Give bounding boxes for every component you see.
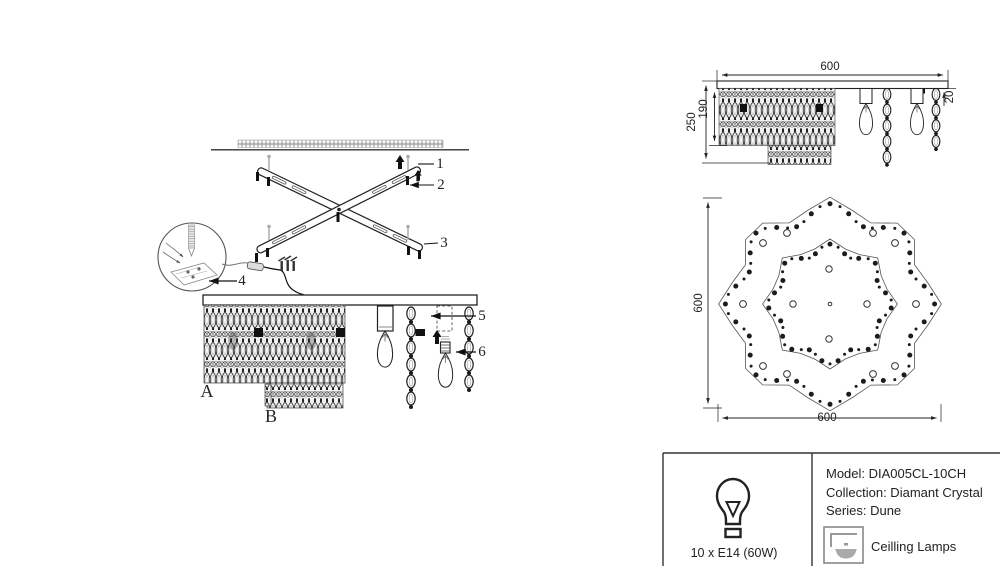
screw-icon: [267, 225, 271, 240]
series-text: Series: Dune: [826, 503, 901, 518]
side-view: [702, 70, 956, 167]
callout-2: 2: [433, 177, 449, 194]
ceiling-lamp-icon: [824, 527, 863, 563]
crystal-curtain-a: [204, 305, 345, 383]
callout-1: 1: [432, 156, 448, 173]
collection-text: Collection: Diamant Crystal: [826, 485, 983, 500]
line-art-layer: [0, 0, 1000, 566]
screw-icon: [406, 155, 410, 170]
arrow-up-icon: [396, 155, 405, 169]
plan-height-dim: 600: [693, 288, 705, 318]
curtain-b-side: [768, 146, 831, 165]
mounting-screws: [279, 256, 298, 271]
crystal-chain-side: [932, 89, 940, 152]
cross-mounting-bracket: [255, 155, 424, 262]
plate-side: [717, 81, 948, 89]
plan-width-dim: 600: [807, 412, 847, 424]
lamp-positions: [740, 230, 920, 378]
side-total-height-dim: 250: [686, 107, 698, 137]
category-text: Ceilling Lamps: [871, 539, 956, 554]
side-width-dim: 600: [810, 61, 850, 73]
crystal-curtain-b: [265, 383, 343, 408]
ceiling-hatch: [211, 140, 469, 150]
empty-socket-dashed: [437, 306, 452, 331]
light-bulb-icon: [717, 479, 749, 537]
assembly-diagram: [158, 140, 477, 409]
bulb-side: [910, 89, 923, 135]
callout-6: 6: [474, 344, 490, 361]
candle-bulb-installed: [377, 306, 393, 367]
callout-4: 4: [234, 273, 250, 290]
callout-5: 5: [474, 308, 490, 325]
panel-label-a: A: [197, 381, 217, 402]
curtain-a-side: [719, 89, 835, 146]
lamp-spec-text: 10 x E14 (60W): [669, 546, 799, 560]
candle-bulb-loose: [438, 337, 452, 388]
chain-clip: [416, 329, 426, 336]
ceiling-plate: [203, 295, 477, 305]
bulb-side: [859, 89, 872, 135]
plan-view: [703, 197, 941, 422]
model-text: Model: DIA005CL-10CH: [826, 466, 966, 481]
panel-label-b: B: [261, 406, 281, 427]
crystal-chain: [407, 307, 415, 409]
side-curtain-height-dim: 190: [698, 94, 710, 124]
screw-icon: [267, 155, 271, 170]
callout-3: 3: [436, 235, 452, 252]
side-plate-thickness-dim: 20: [944, 85, 956, 109]
crystal-chain-side: [883, 89, 891, 167]
technical-drawing-sheet: 1 2 3 4 5 6 A B 600 250 190 20 600 600 1…: [0, 0, 1000, 566]
crystal-chain: [465, 307, 473, 392]
